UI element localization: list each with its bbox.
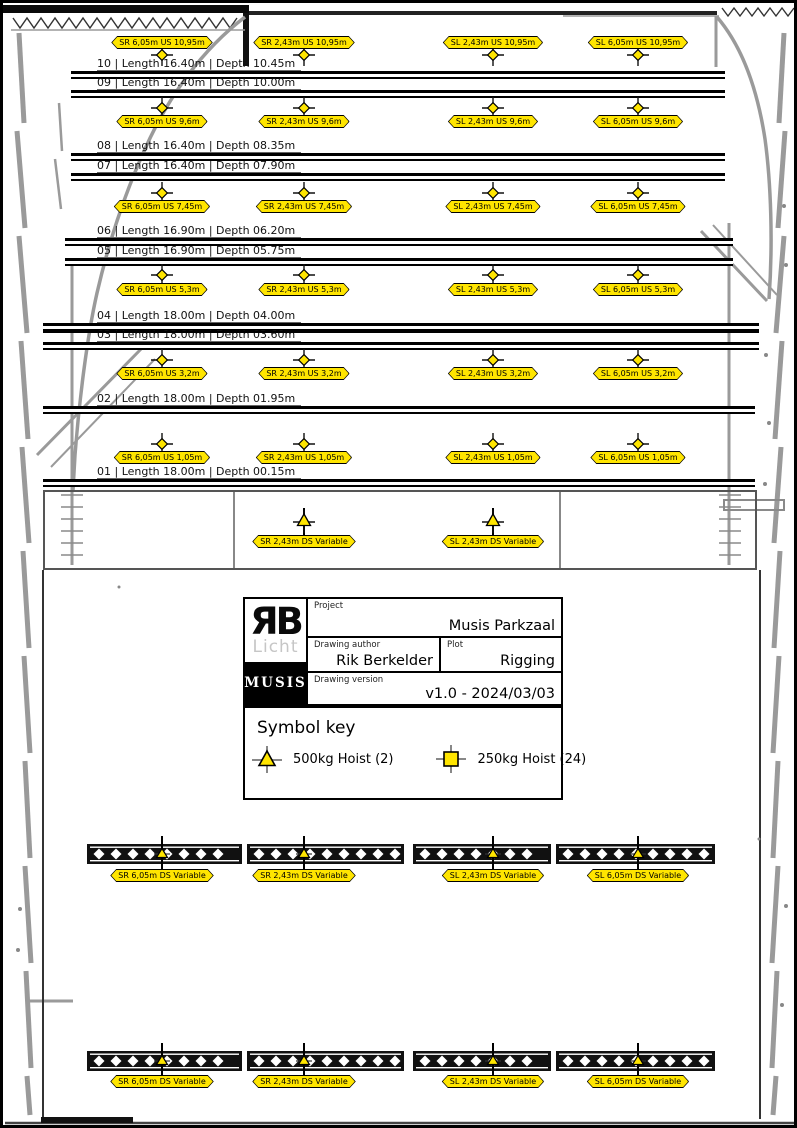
flybar-label-text: SR 6,05m US 10,95m xyxy=(112,37,212,48)
flybar-label-text: SR 6,05m US 3,2m xyxy=(117,368,206,379)
flybar-label-chip: SL 6,05m US 10,95m xyxy=(588,36,688,49)
batten-line-01 xyxy=(43,479,755,487)
hoist-500kg-icon xyxy=(291,508,317,534)
drawing-author-value: Rik Berkelder xyxy=(314,653,433,670)
batten-label-05: 05 | Length 16.90m | Depth 05.75m xyxy=(97,245,301,258)
flybar-label-text: SL 2,43m US 7,45m xyxy=(446,201,539,212)
batten-label-08: 08 | Length 16.40m | Depth 08.35m xyxy=(97,140,301,153)
hoist-500kg-icon xyxy=(485,847,501,859)
batten-label-10: 10 | Length 16.40m | Depth 10.45m xyxy=(97,58,301,71)
flybar-label-chip: SL 6,05m US 3,2m xyxy=(593,367,683,380)
flybar-label-chip: SR 2,43m US 9,6m xyxy=(258,115,349,128)
flybar-label-chip: SL 2,43m US 10,95m xyxy=(443,36,543,49)
flybar-label-text: SL 6,05m US 3,2m xyxy=(594,368,682,379)
flybar-label-text: SR 2,43m US 3,2m xyxy=(259,368,348,379)
flybar-label-chip: SR 2,43m DS Variable xyxy=(252,869,356,882)
hoist-500kg-icon xyxy=(154,1054,170,1066)
250kg-hoist-icon xyxy=(435,744,467,774)
flybar-label-text: SL 6,05m US 9,6m xyxy=(594,116,682,127)
hoist-500kg-icon xyxy=(296,1054,312,1066)
batten-line-02 xyxy=(43,406,755,414)
flybar-label-chip: SR 6,05m DS Variable xyxy=(110,1075,214,1088)
flybar-label-chip: SR 6,05m US 9,6m xyxy=(116,115,207,128)
flybar-label-text: SR 2,43m US 10,95m xyxy=(254,37,354,48)
flybar-label-chip: SR 6,05m US 7,45m xyxy=(114,200,210,213)
flybar-label-chip: SL 6,05m US 5,3m xyxy=(593,283,683,296)
flybar-label-text: SR 6,05m DS Variable xyxy=(111,870,213,881)
flybar-label-text: SL 2,43m DS Variable xyxy=(443,1076,543,1087)
licht-logo-text: Licht xyxy=(245,637,306,657)
plot-value: Rigging xyxy=(447,653,555,670)
symbol-key-item-250kg: 250kg Hoist (24) xyxy=(435,744,586,774)
flybar-label-chip: SL 6,05m US 9,6m xyxy=(593,115,683,128)
flybar-label-chip: SL 2,43m US 3,2m xyxy=(448,367,538,380)
flybar-label-text: SR 6,05m US 7,45m xyxy=(115,201,209,212)
hoist-500kg-icon xyxy=(630,1054,646,1066)
drawing-version-value: v1.0 - 2024/03/03 xyxy=(314,686,555,703)
truss-section xyxy=(413,1051,551,1071)
flybar-label-chip: SL 2,43m DS Variable xyxy=(442,869,544,882)
flybar-label-chip: SR 2,43m US 10,95m xyxy=(253,36,355,49)
batten-label-02: 02 | Length 18.00m | Depth 01.95m xyxy=(97,393,301,406)
flybar-label-chip: SL 6,05m DS Variable xyxy=(587,1075,689,1088)
rb-monogram: ЯB xyxy=(245,604,306,639)
flybar-label-text: SL 2,43m US 10,95m xyxy=(444,37,542,48)
drawing-author-cell: Drawing author Rik Berkelder xyxy=(308,638,441,671)
flybar-label-text: SL 6,05m US 5,3m xyxy=(594,284,682,295)
title-block-fields: Project Musis Parkzaal Drawing author Ri… xyxy=(308,599,561,704)
batten-label-04: 04 | Length 18.00m | Depth 04.00m xyxy=(97,310,301,323)
rigging-drawing-page: 10 | Length 16.40m | Depth 10.45m09 | Le… xyxy=(0,0,797,1128)
flybar-label-chip: SR 6,05m US 1,05m xyxy=(114,451,210,464)
flybar-label-chip: SR 6,05m DS Variable xyxy=(110,869,214,882)
flybar-label-chip: SR 2,43m US 7,45m xyxy=(256,200,352,213)
flybar-label-text: SR 2,43m US 5,3m xyxy=(259,284,348,295)
drawing-version-label: Drawing version xyxy=(314,675,555,685)
flybar-label-text: SL 6,05m US 7,45m xyxy=(591,201,684,212)
flybar-label-chip: SL 2,43m DS Variable xyxy=(442,1075,544,1088)
flybar-label-chip: SL 2,43m DS Variable xyxy=(442,535,544,548)
flybar-label-text: SL 2,43m DS Variable xyxy=(443,536,543,547)
flybar-label-chip: SL 2,43m US 5,3m xyxy=(448,283,538,296)
flybar-label-text: SR 2,43m DS Variable xyxy=(253,870,355,881)
flybar-label-text: SL 2,43m US 5,3m xyxy=(449,284,537,295)
flybar-label-text: SR 2,43m DS Variable xyxy=(253,536,355,547)
flybar-label-chip: SL 2,43m US 9,6m xyxy=(448,115,538,128)
truss-section xyxy=(413,844,551,864)
flybar-label-chip: SR 2,43m DS Variable xyxy=(252,535,356,548)
flybar-label-text: SR 2,43m US 7,45m xyxy=(257,201,351,212)
flybar-label-text: SL 2,43m US 9,6m xyxy=(449,116,537,127)
flybar-label-text: SL 6,05m DS Variable xyxy=(588,870,688,881)
batten-label-09: 09 | Length 16.40m | Depth 10.00m xyxy=(97,77,301,90)
plot-cell: Plot Rigging xyxy=(441,638,561,671)
symbol-key-item-500kg: 500kg Hoist (2) xyxy=(251,744,393,774)
title-block-logo-column: ЯB Licht MUSIS xyxy=(245,599,308,704)
flybar-label-text: SL 6,05m US 10,95m xyxy=(589,37,687,48)
flybar-label-text: SL 6,05m US 1,05m xyxy=(591,452,684,463)
project-value: Musis Parkzaal xyxy=(314,618,555,635)
flybar-label-chip: SR 2,43m US 5,3m xyxy=(258,283,349,296)
flybar-label-chip: SL 6,05m US 7,45m xyxy=(590,200,685,213)
rb-licht-logo: ЯB Licht xyxy=(245,599,306,662)
batten-label-07: 07 | Length 16.40m | Depth 07.90m xyxy=(97,160,301,173)
truss-section xyxy=(247,1051,404,1071)
drawing-version-cell: Drawing version v1.0 - 2024/03/03 xyxy=(308,673,561,704)
plot-label: Plot xyxy=(447,640,555,650)
flybar-label-text: SR 2,43m US 1,05m xyxy=(257,452,351,463)
title-block: ЯB Licht MUSIS Project Musis Parkzaal Dr… xyxy=(243,597,563,706)
apron-divider xyxy=(233,492,235,568)
flybar-label-chip: SR 2,43m US 1,05m xyxy=(256,451,352,464)
flybar-label-chip: SL 2,43m US 1,05m xyxy=(445,451,540,464)
flybar-label-chip: SL 2,43m US 7,45m xyxy=(445,200,540,213)
symbol-key-label: 250kg Hoist (24) xyxy=(477,752,586,767)
500kg-hoist-icon xyxy=(251,744,283,774)
apron-box xyxy=(43,490,757,570)
flybar-label-chip: SL 6,05m US 1,05m xyxy=(590,451,685,464)
flybar-label-chip: SR 2,43m US 3,2m xyxy=(258,367,349,380)
flybar-label-text: SR 6,05m US 9,6m xyxy=(117,116,206,127)
flybar-label-text: SL 2,43m US 1,05m xyxy=(446,452,539,463)
flybar-label-text: SL 2,43m DS Variable xyxy=(443,870,543,881)
extra-batten-line xyxy=(43,331,759,333)
flybar-label-text: SL 6,05m DS Variable xyxy=(588,1076,688,1087)
project-cell: Project Musis Parkzaal xyxy=(308,599,561,636)
flybar-label-chip: SR 2,43m DS Variable xyxy=(252,1075,356,1088)
hoist-500kg-icon xyxy=(296,847,312,859)
project-label: Project xyxy=(314,601,555,611)
flybar-label-chip: SR 6,05m US 3,2m xyxy=(116,367,207,380)
rigging-plot: 10 | Length 16.40m | Depth 10.45m09 | Le… xyxy=(3,3,797,1128)
batten-label-01: 01 | Length 18.00m | Depth 00.15m xyxy=(97,466,301,479)
flybar-label-chip: SR 6,05m US 5,3m xyxy=(116,283,207,296)
symbol-key: Symbol key 500kg Hoist (2) xyxy=(243,706,563,800)
flybar-label-text: SR 6,05m US 5,3m xyxy=(117,284,206,295)
symbol-key-label: 500kg Hoist (2) xyxy=(293,752,393,767)
hoist-500kg-icon xyxy=(154,847,170,859)
hoist-500kg-icon xyxy=(485,1054,501,1066)
flybar-label-chip: SR 6,05m US 10,95m xyxy=(111,36,213,49)
musis-logo: MUSIS xyxy=(245,662,306,704)
hoist-500kg-icon xyxy=(480,508,506,534)
flybar-label-text: SR 6,05m US 1,05m xyxy=(115,452,209,463)
apron-divider xyxy=(559,492,561,568)
batten-label-06: 06 | Length 16.90m | Depth 06.20m xyxy=(97,225,301,238)
flybar-label-text: SR 2,43m DS Variable xyxy=(253,1076,355,1087)
flybar-label-text: SL 2,43m US 3,2m xyxy=(449,368,537,379)
drawing-author-label: Drawing author xyxy=(314,640,433,650)
flybar-label-text: SR 6,05m DS Variable xyxy=(111,1076,213,1087)
symbol-key-title: Symbol key xyxy=(245,708,561,738)
flybar-label-text: SR 2,43m US 9,6m xyxy=(259,116,348,127)
hoist-500kg-icon xyxy=(630,847,646,859)
flybar-label-chip: SL 6,05m DS Variable xyxy=(587,869,689,882)
truss-section xyxy=(247,844,404,864)
